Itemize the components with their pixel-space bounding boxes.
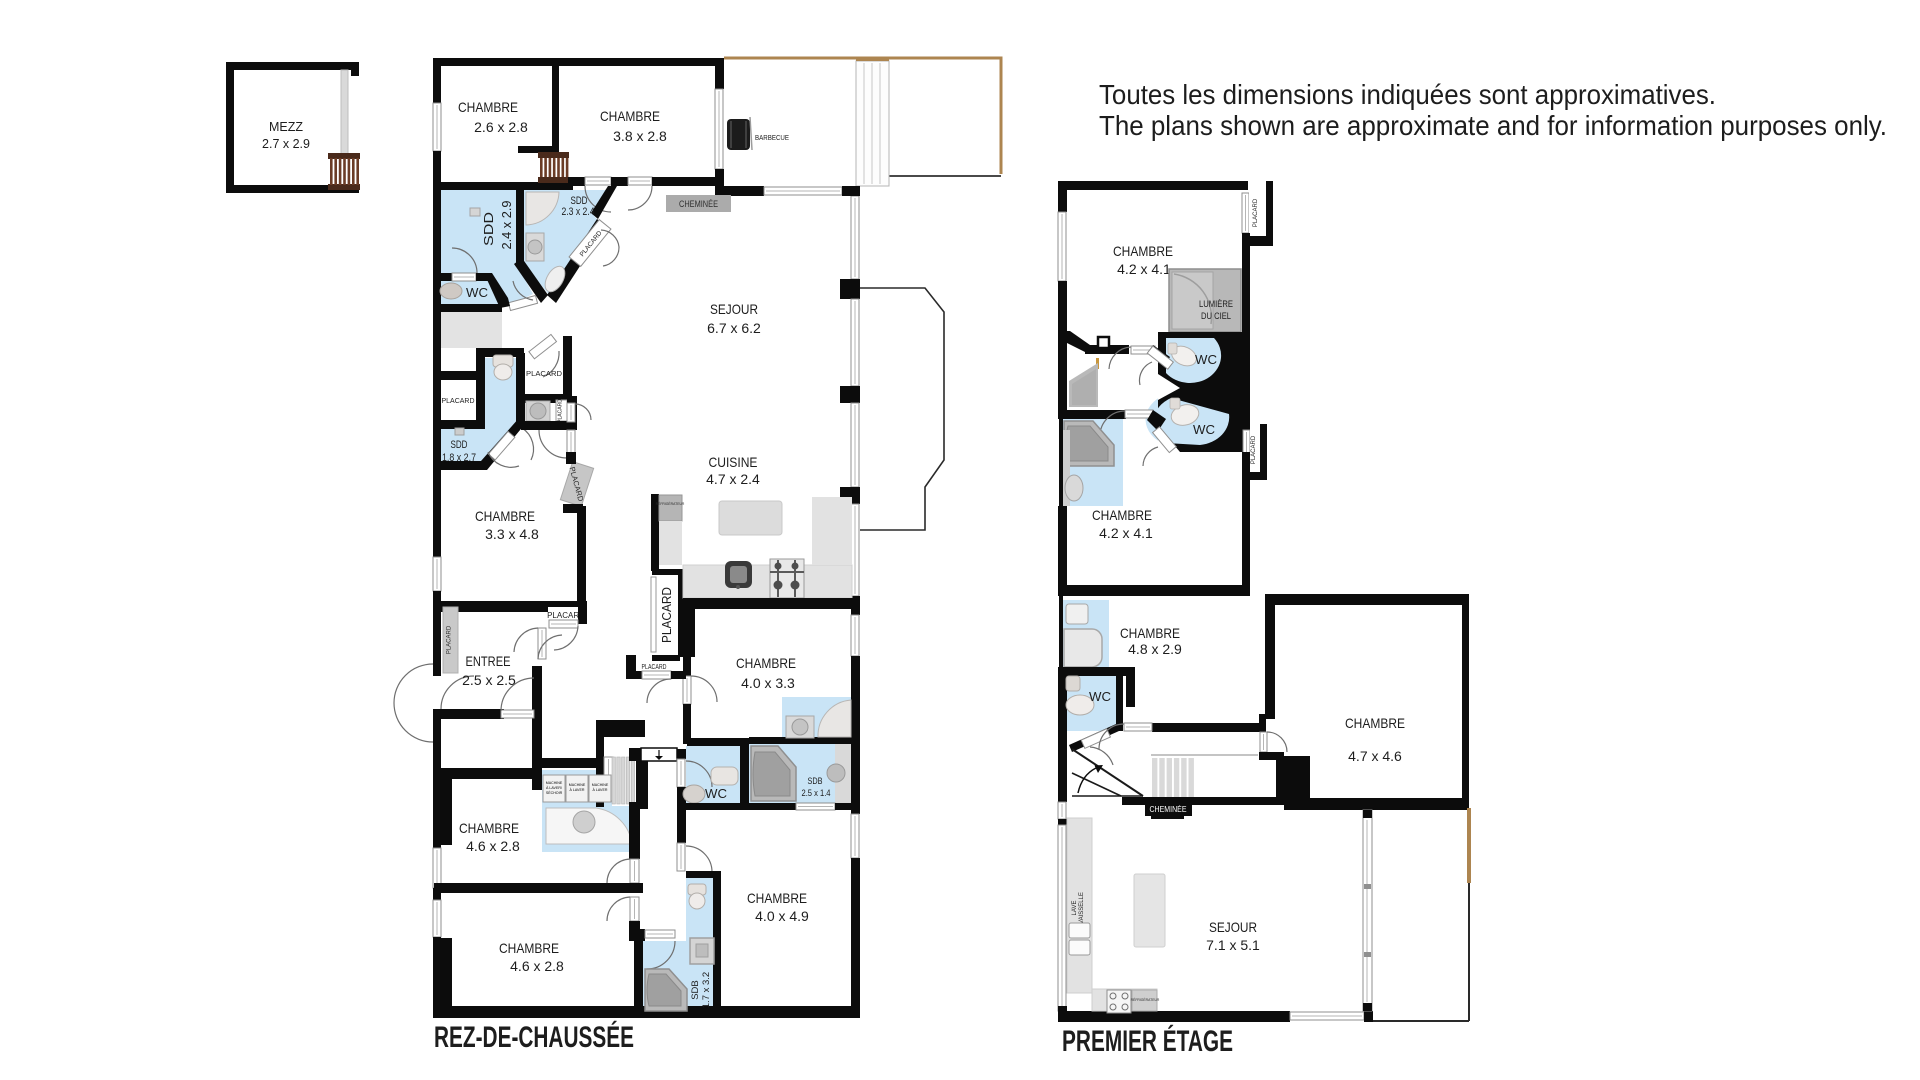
svg-text:WC: WC <box>705 786 727 801</box>
svg-text:4.0 x 3.3: 4.0 x 3.3 <box>741 675 795 691</box>
svg-text:4.6 x 2.8: 4.6 x 2.8 <box>466 838 520 854</box>
svg-text:DU CIEL: DU CIEL <box>1201 311 1231 322</box>
svg-text:MEZZ: MEZZ <box>269 120 303 134</box>
svg-text:CUISINE: CUISINE <box>709 454 758 470</box>
svg-text:6.7 x 6.2: 6.7 x 6.2 <box>707 320 761 336</box>
svg-text:CHAMBRE: CHAMBRE <box>499 940 559 956</box>
svg-text:2.7 x 2.9: 2.7 x 2.9 <box>262 137 310 151</box>
svg-text:RÉFRIGÉRATEUR: RÉFRIGÉRATEUR <box>656 501 685 506</box>
svg-text:CHAMBRE: CHAMBRE <box>600 108 660 124</box>
svg-text:CHAMBRE: CHAMBRE <box>458 99 518 115</box>
svg-text:CHAMBRE: CHAMBRE <box>475 508 535 524</box>
svg-text:2.4 x 2.9: 2.4 x 2.9 <box>500 200 514 249</box>
svg-text:PREMIER ÉTAGE: PREMIER ÉTAGE <box>1062 1024 1233 1058</box>
svg-text:MACHINE: MACHINE <box>546 781 563 785</box>
svg-text:WC: WC <box>1193 422 1215 437</box>
svg-text:1.7 x 3.2: 1.7 x 3.2 <box>701 972 712 1008</box>
svg-text:CHAMBRE: CHAMBRE <box>747 890 807 906</box>
svg-text:2.5 x 2.5: 2.5 x 2.5 <box>462 672 516 688</box>
svg-text:2.6 x 2.8: 2.6 x 2.8 <box>474 119 528 135</box>
svg-text:SEJOUR: SEJOUR <box>710 301 758 317</box>
svg-text:CHAMBRE: CHAMBRE <box>1113 243 1173 259</box>
svg-text:PLACARD: PLACARD <box>526 369 563 378</box>
svg-text:CHEMINÉE: CHEMINÉE <box>1150 804 1187 814</box>
svg-text:2.3 x 2.4: 2.3 x 2.4 <box>562 206 595 218</box>
svg-text:RÉFRIGÉRATEUR: RÉFRIGÉRATEUR <box>1131 997 1160 1002</box>
svg-text:1.8 x 2.7: 1.8 x 2.7 <box>442 452 476 464</box>
svg-text:The plans shown are approximat: The plans shown are approximate and for … <box>1099 110 1887 141</box>
svg-text:7.1 x 5.1: 7.1 x 5.1 <box>1206 937 1260 953</box>
svg-text:4.7 x 2.4: 4.7 x 2.4 <box>706 471 760 487</box>
svg-text:LAVE: LAVE <box>1072 901 1078 916</box>
svg-text:4.0 x 4.9: 4.0 x 4.9 <box>755 908 809 924</box>
svg-text:SEJOUR: SEJOUR <box>1209 919 1257 935</box>
svg-text:WC: WC <box>466 285 488 300</box>
svg-text:WC: WC <box>1195 352 1217 367</box>
svg-text:SÉCHOIR: SÉCHOIR <box>546 790 563 795</box>
svg-text:PLACARD: PLACARD <box>558 399 564 423</box>
svg-text:SDB: SDB <box>690 980 701 1000</box>
svg-text:4.2 x 4.1: 4.2 x 4.1 <box>1099 525 1153 541</box>
svg-text:2.5 x 1.4: 2.5 x 1.4 <box>802 788 831 799</box>
svg-text:PLACARD: PLACARD <box>1251 435 1257 464</box>
svg-text:REZ-DE-CHAUSSÉE: REZ-DE-CHAUSSÉE <box>434 1020 634 1054</box>
svg-text:À LAVER: À LAVER <box>593 788 608 792</box>
svg-text:SDB: SDB <box>808 776 823 787</box>
svg-text:CHAMBRE: CHAMBRE <box>459 820 519 836</box>
svg-text:MACHINE: MACHINE <box>569 783 586 787</box>
svg-text:CHAMBRE: CHAMBRE <box>1092 507 1152 523</box>
svg-text:LUMIÈRE: LUMIÈRE <box>1199 299 1233 310</box>
svg-text:À LAVER: À LAVER <box>570 788 585 792</box>
svg-text:PLACARD: PLACARD <box>1253 198 1259 227</box>
svg-text:3.3 x 4.8: 3.3 x 4.8 <box>485 526 539 542</box>
svg-text:VAISSELLE: VAISSELLE <box>1079 892 1085 924</box>
svg-text:PLACARD: PLACARD <box>642 662 667 671</box>
svg-text:PLACARD: PLACARD <box>442 396 476 405</box>
svg-text:3.8 x 2.8: 3.8 x 2.8 <box>613 128 667 144</box>
svg-text:4.6 x 2.8: 4.6 x 2.8 <box>510 958 564 974</box>
svg-text:SDD: SDD <box>451 439 468 451</box>
svg-text:4.7 x 4.6: 4.7 x 4.6 <box>1348 748 1402 764</box>
svg-text:MACHINE: MACHINE <box>592 783 609 787</box>
svg-text:À LAVER/: À LAVER/ <box>546 786 562 790</box>
svg-text:4.8 x 2.9: 4.8 x 2.9 <box>1128 641 1182 657</box>
svg-text:ENTREE: ENTREE <box>466 653 511 669</box>
svg-text:CHAMBRE: CHAMBRE <box>1120 625 1180 641</box>
svg-text:SDD: SDD <box>482 212 496 246</box>
svg-text:CHAMBRE: CHAMBRE <box>736 655 796 671</box>
svg-text:PLACARD: PLACARD <box>447 625 453 654</box>
svg-text:PLACARD: PLACARD <box>660 587 674 643</box>
svg-text:CHEMINÉE: CHEMINÉE <box>679 199 718 209</box>
svg-text:Toutes les dimensions indiquée: Toutes les dimensions indiquées sont app… <box>1099 79 1716 110</box>
svg-text:4.2 x 4.1: 4.2 x 4.1 <box>1117 261 1171 277</box>
svg-text:WC: WC <box>1089 689 1111 704</box>
svg-text:CHAMBRE: CHAMBRE <box>1345 715 1405 731</box>
svg-text:BARBECUE: BARBECUE <box>755 133 789 142</box>
